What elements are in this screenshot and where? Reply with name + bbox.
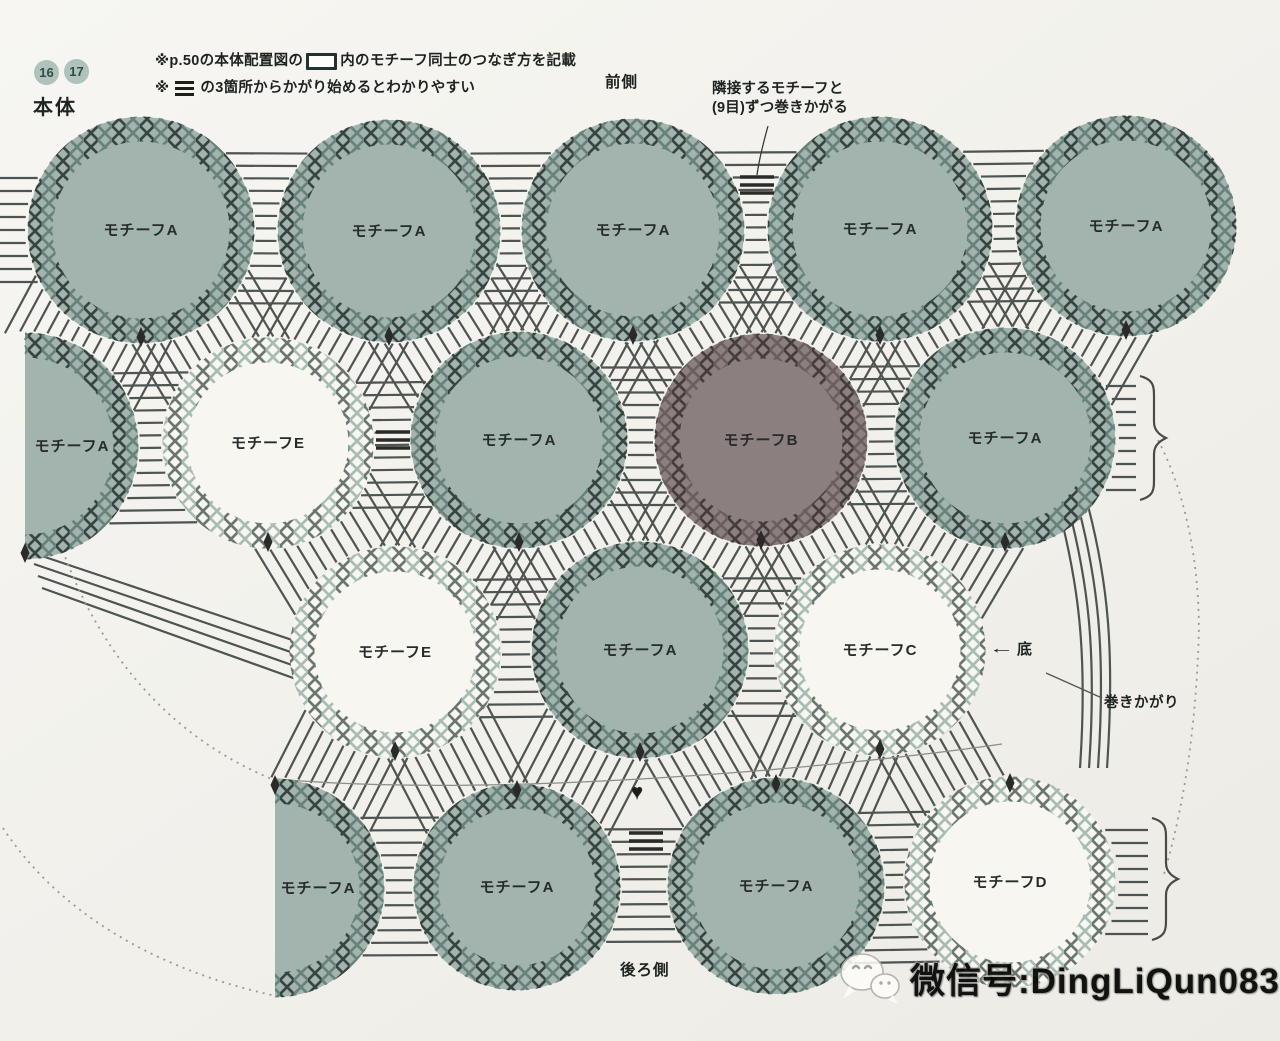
note2-post: の3箇所からかがり始めるとわかりやすい <box>200 75 475 102</box>
motif-label: モチーフB <box>724 432 799 449</box>
diagram-canvas: モチーフAモチーフAモチーフAモチーフAモチーフAモチーフAモチーフEモチーフA… <box>0 0 1280 1041</box>
note1-pre: ※p.50の本体配置図の <box>155 48 303 75</box>
motif-label: モチーフA <box>104 222 179 239</box>
watermark: 微信号:DingLiQun0830 <box>838 950 1280 1006</box>
triple-line-icon <box>175 81 194 96</box>
motif-label: モチーフA <box>480 879 555 896</box>
note-line-2: ※ の3箇所からかがり始めるとわかりやすい <box>155 75 576 102</box>
notes-block: ※p.50の本体配置図の 内のモチーフ同士のつなぎ方を記載 ※ の3箇所からかが… <box>155 48 576 102</box>
adjacent-annotation-line2: (9目)ずつ巻きかがる <box>712 99 848 118</box>
motif-label: モチーフA <box>482 432 557 449</box>
bottom-annotation-text: 底 <box>1017 638 1032 659</box>
motif-label: モチーフA <box>603 642 678 659</box>
motif-label: モチーフA <box>596 222 671 239</box>
motif-label: モチーフE <box>358 644 432 661</box>
note-line-1: ※p.50の本体配置図の 内のモチーフ同士のつなぎ方を記載 <box>155 48 576 75</box>
item-number-badge: 17 <box>64 59 89 84</box>
back-side-label: 後ろ側 <box>620 958 670 980</box>
motif-label: モチーフA <box>968 430 1043 447</box>
bottom-annotation: ← 底 <box>994 638 1032 659</box>
left-arrow-icon: ← <box>989 640 1015 657</box>
crochet-motif-layout-diagram: モチーフAモチーフAモチーフAモチーフAモチーフAモチーフAモチーフEモチーフA… <box>0 0 1280 1041</box>
motif-label: モチーフA <box>35 438 110 455</box>
motifs: モチーフAモチーフAモチーフAモチーフAモチーフAモチーフAモチーフEモチーフA… <box>0 116 1236 997</box>
whip-stitch-annotation: 巻きかがり <box>1104 691 1179 712</box>
motif-label: モチーフA <box>352 223 427 240</box>
motif-label: モチーフA <box>281 880 356 897</box>
note2-pre: ※ <box>155 75 169 102</box>
item-number-badge: 16 <box>34 60 59 85</box>
page-title: 本体 <box>33 91 77 120</box>
note1-post: 内のモチーフ同士のつなぎ方を記載 <box>340 48 576 75</box>
front-side-label: 前側 <box>605 70 638 92</box>
box-icon <box>306 53 337 70</box>
motif-label: モチーフD <box>973 874 1048 891</box>
motif-label: モチーフA <box>739 878 814 895</box>
watermark-text: 微信号:DingLiQun0830 <box>910 953 1280 1004</box>
adjacent-whip-annotation: 隣接するモチーフと (9目)ずつ巻きかがる <box>712 80 848 118</box>
motif-label: モチーフA <box>843 221 918 238</box>
motif-label: モチーフE <box>231 435 305 452</box>
motif-label: モチーフC <box>843 642 918 659</box>
motif-label: モチーフA <box>1089 218 1164 235</box>
adjacent-annotation-line1: 隣接するモチーフと <box>712 80 848 99</box>
wechat-icon <box>838 950 900 1006</box>
heart-marker: ♥ <box>631 782 642 803</box>
